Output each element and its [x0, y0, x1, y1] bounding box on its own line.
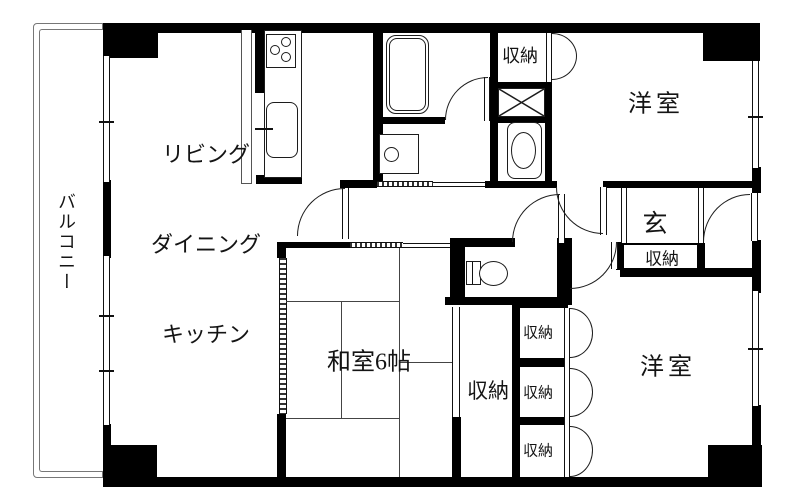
wall — [752, 240, 761, 293]
ldk-label-line1: リビング — [151, 140, 261, 170]
door-opening-line — [433, 182, 485, 187]
washing-machine-knob-icon — [384, 147, 399, 162]
closet-door-arc — [570, 368, 593, 392]
door-arc — [297, 188, 345, 236]
wall — [752, 167, 761, 193]
bath-door-arc — [445, 77, 488, 120]
wall — [603, 181, 760, 188]
closet-small-2-label: 収納 — [523, 382, 553, 403]
wall — [697, 243, 705, 270]
window — [103, 256, 110, 425]
washbasin-bowl — [511, 132, 536, 169]
wall — [515, 358, 568, 367]
window-tick — [99, 315, 114, 317]
floor-plan: バルコニー — [0, 0, 800, 501]
stove-burner-icon — [281, 52, 291, 62]
wall — [752, 405, 761, 447]
sink-icon — [266, 102, 298, 158]
door-arc — [570, 242, 617, 289]
japanese-room-label: 和室6帖 — [327, 342, 411, 377]
closet-tall-label: 収納 — [467, 375, 509, 405]
wall — [277, 242, 352, 248]
closet-door-arc — [552, 56, 577, 80]
pipe-shaft-icon — [498, 88, 545, 117]
door-arc — [512, 194, 560, 242]
ldk-label-line3: キッチン — [151, 320, 261, 350]
wall — [103, 445, 157, 480]
entrance-door-arc — [703, 194, 750, 242]
wall — [485, 181, 557, 188]
entrance-step-line — [621, 188, 627, 243]
window — [752, 61, 759, 168]
wall — [452, 417, 461, 477]
wall — [545, 82, 552, 188]
toilet-bowl-icon — [479, 261, 508, 286]
closet-small-1-label: 収納 — [523, 322, 553, 343]
wall — [515, 417, 568, 425]
closet-door-arc — [570, 450, 593, 477]
wall — [103, 424, 111, 447]
wall — [465, 238, 515, 247]
wall — [103, 477, 762, 487]
ldk-label-line2: ダイニング — [151, 230, 261, 260]
closet-door-arc — [552, 33, 577, 56]
closet-door-arc — [570, 392, 593, 417]
pipe-shaft-x — [499, 89, 544, 116]
window-tick — [748, 116, 763, 118]
wall — [103, 180, 111, 258]
entrance-closet-label: 収納 — [645, 245, 679, 270]
western-room-top-label: 洋室 — [628, 84, 684, 119]
wall — [490, 28, 498, 188]
ldk-label: リビング ダイニング キッチン — [151, 80, 261, 410]
toilet-tank-line — [472, 262, 473, 284]
window-tick — [99, 121, 114, 123]
door-opening-line — [403, 243, 450, 248]
wall — [512, 302, 568, 308]
entry-door-panel — [751, 193, 758, 241]
closet-small-3-label: 収納 — [523, 440, 553, 461]
closet-top-label: 収納 — [502, 42, 538, 68]
wall — [383, 117, 445, 124]
stove-burner-icon — [270, 45, 280, 55]
tatami-line — [286, 301, 399, 302]
window — [103, 56, 110, 182]
sliding-door-hatch — [350, 242, 403, 248]
sliding-door-hatch — [377, 181, 433, 187]
wall — [277, 414, 286, 477]
wall — [450, 238, 465, 305]
wall — [708, 445, 762, 481]
stove-burner-icon — [281, 37, 291, 47]
sliding-door-hatch — [279, 258, 287, 414]
balcony-label: バルコニー — [53, 192, 79, 292]
closet-door-arc — [570, 333, 593, 358]
wall — [512, 302, 520, 477]
entrance-label: 玄 — [642, 204, 667, 240]
wall — [277, 242, 286, 258]
window-tick — [99, 370, 114, 372]
wall — [620, 268, 760, 277]
wall — [340, 180, 377, 188]
wall — [103, 23, 158, 58]
wall — [703, 28, 760, 61]
western-room-bottom-label: 洋室 — [640, 347, 696, 382]
closet-sliding-door — [452, 307, 460, 417]
closet-door-arc — [570, 308, 593, 333]
bathtub-inner — [389, 38, 426, 111]
tatami-line — [286, 418, 399, 419]
window-tick — [748, 348, 763, 350]
closet-door-arc — [570, 426, 593, 450]
